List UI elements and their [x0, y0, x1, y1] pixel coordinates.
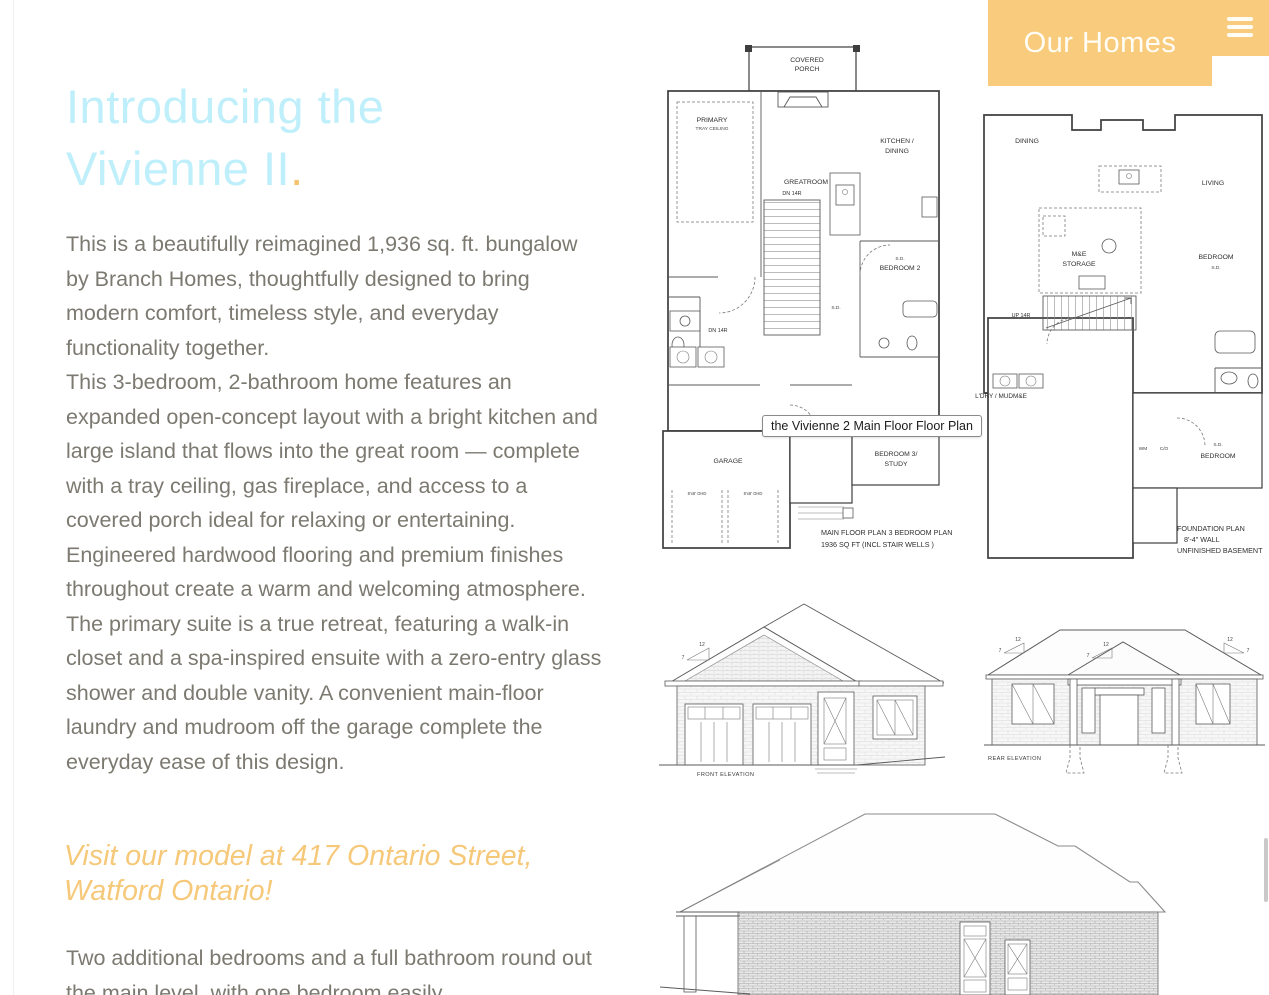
svg-text:COVERED: COVERED: [790, 57, 824, 64]
svg-text:KITCHEN /: KITCHEN /: [880, 138, 914, 145]
svg-text:STUDY: STUDY: [884, 461, 908, 468]
side-elevation-image[interactable]: [660, 790, 1269, 995]
svg-text:S.D.: S.D.: [831, 305, 840, 311]
title-period: .: [290, 142, 304, 195]
svg-text:7: 7: [1087, 653, 1090, 659]
main-floor-plan-image[interactable]: DN 14R DN 14R 8'x8' OHD 8'x8' OHD COVERE…: [660, 45, 945, 552]
svg-text:MAIN FLOOR PLAN 3 BEDROOM PLAN: MAIN FLOOR PLAN 3 BEDROOM PLAN: [821, 528, 952, 537]
svg-text:FOUNDATION PLAN: FOUNDATION PLAN: [1177, 524, 1245, 533]
svg-text:TRAY CEILING: TRAY CEILING: [696, 126, 729, 132]
svg-text:8'x8' OHD: 8'x8' OHD: [744, 491, 763, 496]
svg-text:12: 12: [1015, 637, 1021, 643]
svg-text:UP 14R: UP 14R: [1012, 313, 1031, 319]
svg-text:S.D.: S.D.: [1213, 442, 1222, 448]
front-elevation-image[interactable]: 12 7 FRONT ELEVATION: [657, 597, 947, 779]
svg-text:FRONT ELEVATION: FRONT ELEVATION: [697, 772, 754, 778]
menu-button[interactable]: [1212, 0, 1269, 56]
svg-text:12: 12: [1227, 637, 1233, 643]
svg-text:STORAGE: STORAGE: [1062, 261, 1096, 268]
svg-text:12: 12: [1103, 642, 1109, 648]
page-edge-divider: [13, 0, 14, 995]
svg-text:BEDROOM 2: BEDROOM 2: [880, 265, 921, 272]
svg-text:DINING: DINING: [885, 148, 909, 155]
svg-text:BEDROOM 3/: BEDROOM 3/: [875, 451, 918, 458]
svg-text:1936 SQ FT (INCL STAIR WELLS ): 1936 SQ FT (INCL STAIR WELLS ): [821, 540, 934, 549]
svg-text:BEDROOM: BEDROOM: [1200, 453, 1235, 460]
paragraph-additional-bedrooms: Two additional bedrooms and a full bathr…: [66, 941, 606, 995]
svg-text:M&E: M&E: [1072, 251, 1087, 258]
image-alt-tooltip: the Vivienne 2 Main Floor Floor Plan: [762, 415, 982, 437]
page: Our Homes Introducing the Vivienne II. T…: [0, 0, 1269, 995]
svg-text:GARAGE: GARAGE: [713, 458, 743, 465]
svg-text:8'x8' OHD: 8'x8' OHD: [688, 491, 707, 496]
svg-text:GREATROOM: GREATROOM: [784, 179, 828, 186]
svg-text:S.D.: S.D.: [1211, 265, 1220, 271]
scrollbar-thumb[interactable]: [1264, 838, 1268, 902]
svg-text:PRIMARY: PRIMARY: [697, 117, 728, 124]
svg-text:LIVING: LIVING: [1202, 180, 1224, 187]
svg-text:PORCH: PORCH: [795, 66, 820, 73]
svg-text:7: 7: [999, 648, 1002, 654]
paragraph-primary-suite: The primary suite is a true retreat, fea…: [66, 607, 606, 780]
paragraph-layout: This 3-bedroom, 2-bathroom home features…: [66, 365, 606, 607]
svg-text:DN 14R: DN 14R: [708, 328, 727, 334]
svg-text:DN 14R: DN 14R: [782, 191, 801, 197]
rear-elevation-image[interactable]: 12 7 12 7 12 7 REAR ELEVATION: [980, 618, 1269, 778]
nav-our-homes[interactable]: Our Homes: [988, 0, 1212, 86]
svg-text:C/O: C/O: [1160, 446, 1169, 452]
model-address-callout: Visit our model at 417 Ontario Street, W…: [64, 839, 624, 908]
svg-text:BEDROOM: BEDROOM: [1198, 254, 1233, 261]
svg-text:WM: WM: [1139, 446, 1148, 452]
svg-text:UNFINISHED BASEMENT: UNFINISHED BASEMENT: [1177, 546, 1263, 555]
foundation-plan-image[interactable]: UP 14R DINING LIVING M&E STORAGE BEDROOM…: [981, 88, 1265, 565]
nav-our-homes-label: Our Homes: [1024, 27, 1177, 60]
svg-text:7: 7: [1247, 648, 1250, 654]
svg-text:8'-4" WALL: 8'-4" WALL: [1184, 535, 1220, 544]
svg-text:REAR ELEVATION: REAR ELEVATION: [988, 756, 1041, 762]
svg-text:7: 7: [682, 655, 685, 661]
intro-copy: This is a beautifully reimagined 1,936 s…: [66, 227, 606, 779]
svg-text:S.D.: S.D.: [895, 256, 904, 262]
svg-text:L'DRY / MUDM&E: L'DRY / MUDM&E: [975, 393, 1027, 400]
svg-text:12: 12: [699, 642, 705, 648]
paragraph-overview: This is a beautifully reimagined 1,936 s…: [66, 227, 606, 365]
svg-text:DINING: DINING: [1015, 138, 1039, 145]
page-title: Introducing the Vivienne II.: [66, 76, 626, 200]
hamburger-icon: [1227, 17, 1253, 41]
